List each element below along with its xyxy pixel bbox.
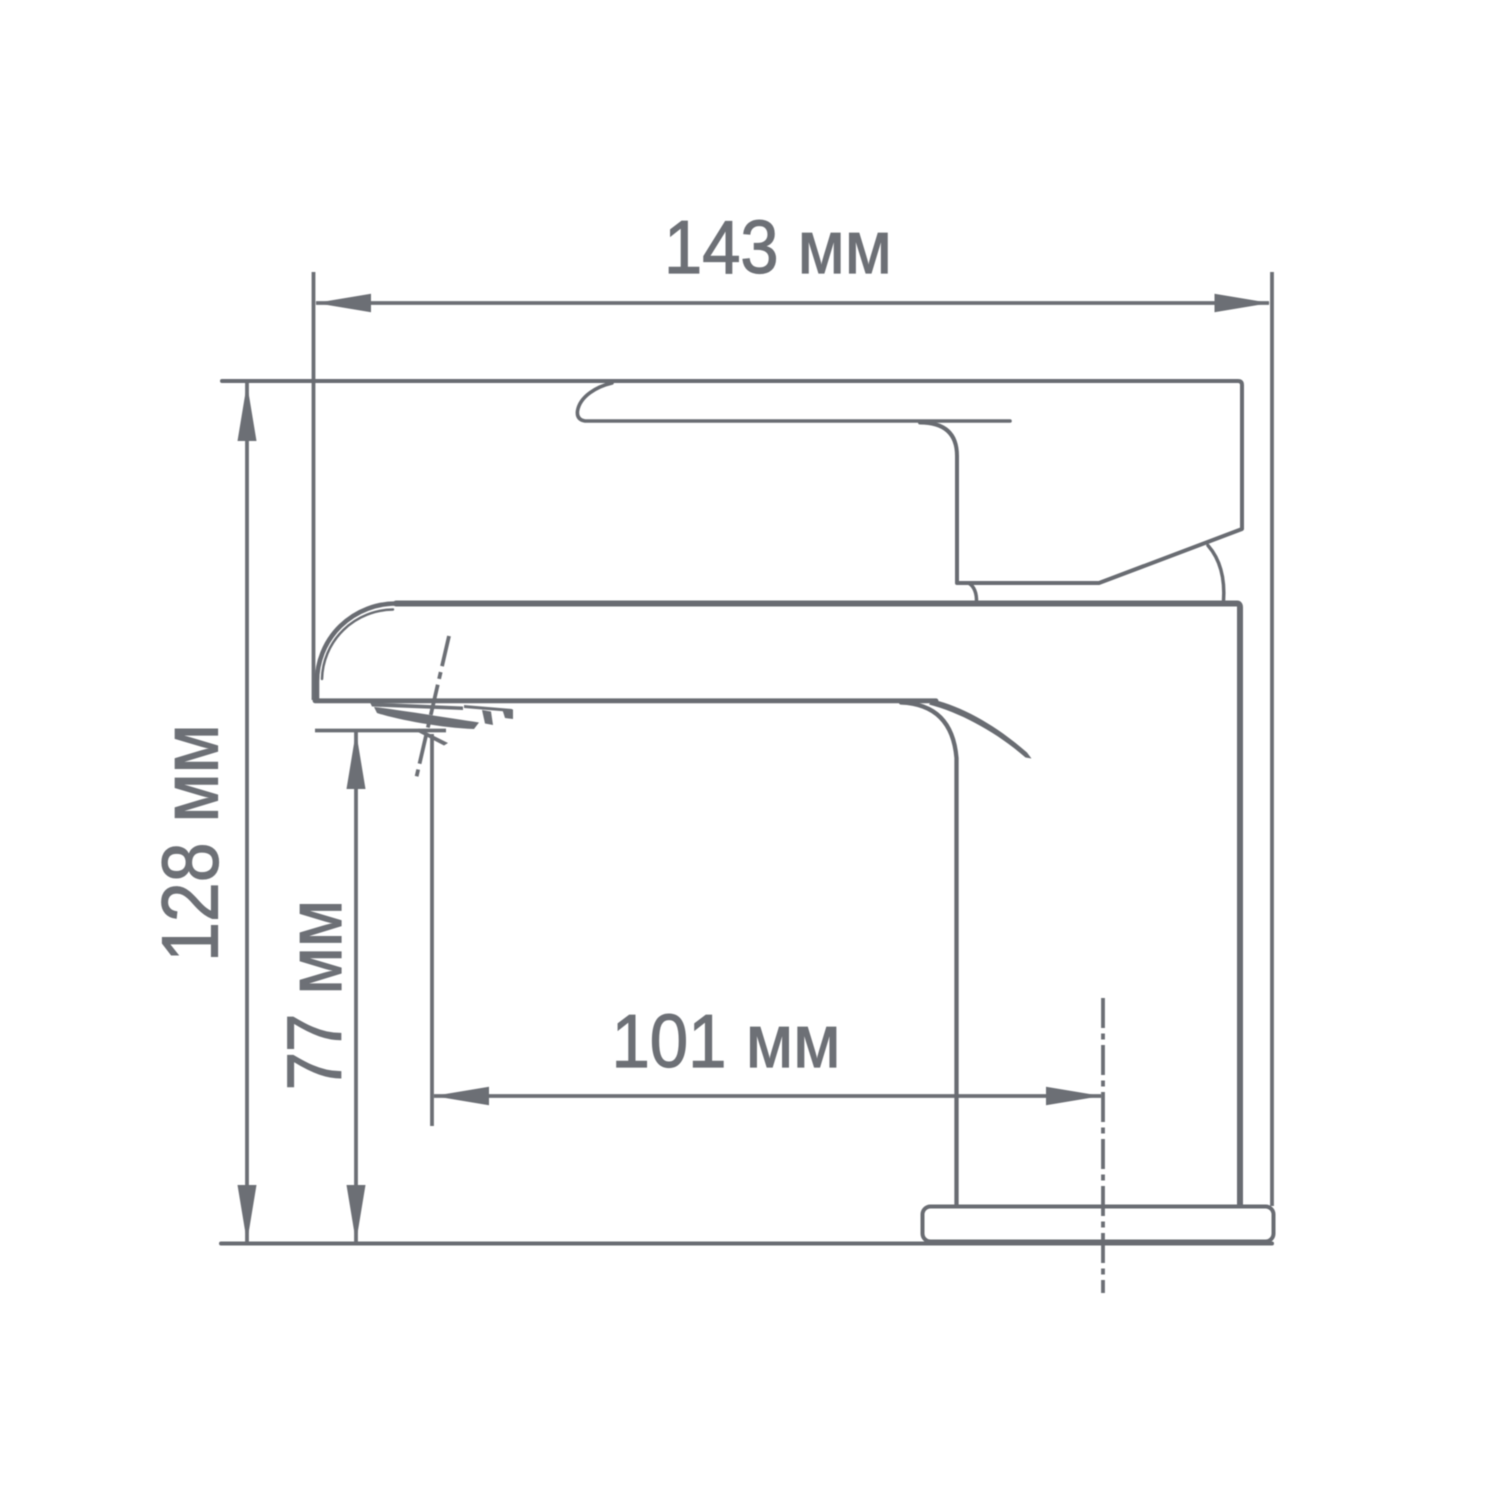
svg-text:128 мм: 128 мм <box>146 724 236 962</box>
svg-text:77 мм: 77 мм <box>273 900 358 1091</box>
svg-text:101 мм: 101 мм <box>611 1000 840 1083</box>
svg-text:143 мм: 143 мм <box>664 206 892 289</box>
